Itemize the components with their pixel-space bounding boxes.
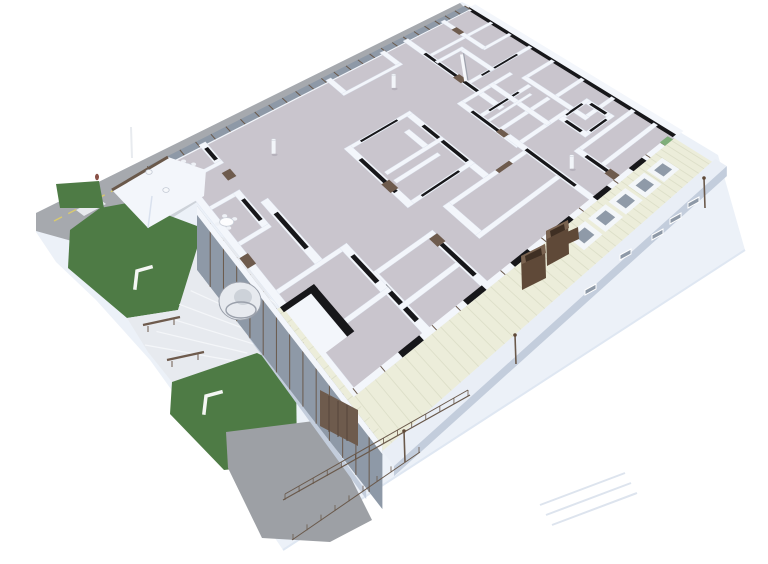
chair <box>222 214 227 218</box>
pedestrian-figure <box>95 174 99 180</box>
light-pole-head <box>702 176 706 180</box>
toilet-fixture <box>163 188 169 193</box>
light-pole-head <box>402 429 406 433</box>
light-pole <box>404 431 405 462</box>
column-cap <box>391 74 395 76</box>
floor-plan-svg <box>0 0 768 564</box>
street-lawn-patch <box>56 181 104 208</box>
light-pole <box>515 335 516 364</box>
flagpole <box>131 127 132 158</box>
toilet-fixture <box>146 170 152 175</box>
column-cap <box>570 155 574 157</box>
column-shadow <box>272 153 278 156</box>
column-shadow <box>570 168 576 171</box>
floor-plan-render <box>0 0 768 564</box>
chair <box>226 226 231 230</box>
light-pole-head <box>513 333 517 337</box>
light-pole <box>704 178 705 208</box>
column-cap <box>271 139 275 141</box>
column-shadow <box>392 87 398 90</box>
round-table <box>220 218 234 227</box>
